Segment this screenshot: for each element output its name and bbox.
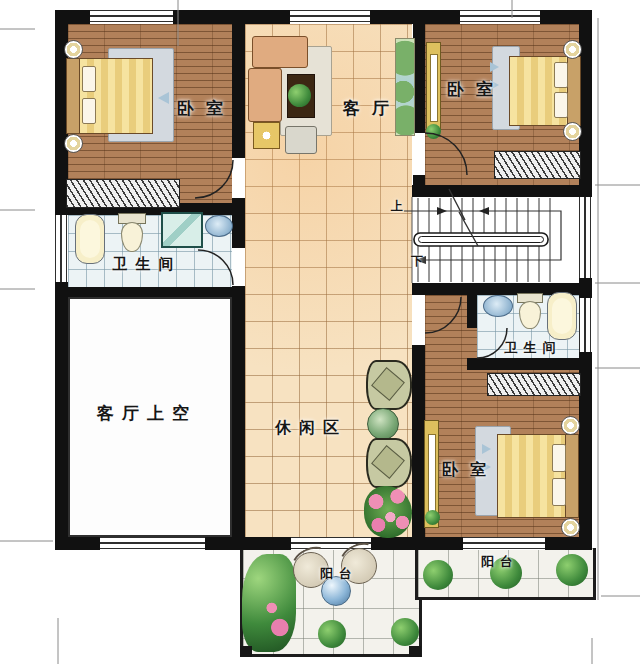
nightstand-lamp-icon [563,40,582,59]
wall-bottom [371,537,463,550]
label-bathroom-right: 卫生间 [499,339,562,357]
label-stairs-up: 上 [391,198,403,215]
label-stairs-down: 下 [411,253,423,270]
wall-inner [55,287,245,297]
wall-right [579,278,592,298]
sink-icon [483,295,513,317]
door-opening [412,295,425,345]
balcony-post [409,646,421,657]
bush-icon [391,618,419,646]
wardrobe-icon [487,373,581,396]
pillow [552,444,566,472]
sofa-icon [248,68,282,122]
label-bathroom-left: 卫生间 [105,255,182,274]
plant-icon [426,124,441,139]
bed-headboard [565,434,579,518]
window-icon [579,197,592,278]
window-icon [579,298,592,352]
floor-plan: 卧室 客厅 卧室 卫生间 客厅上空 休闲区 卫生间 卧室 阳台 阳台 上 下 [0,0,640,664]
sliding-door-icon [463,537,545,550]
plant-icon [288,84,311,107]
round-table-icon [367,408,399,440]
plant-icon [242,554,296,652]
label-balcony-left: 阳台 [314,565,358,583]
wall-inner [467,358,579,370]
wall-left [55,282,68,550]
staircase-area [412,197,579,283]
plant-icon [425,510,440,525]
nightstand-lamp-icon [64,40,83,59]
side-table-icon [253,122,280,149]
label-living-void: 客厅上空 [89,402,197,425]
label-balcony-right: 阳台 [475,553,519,571]
window-icon [290,10,370,24]
pillow [82,66,96,92]
arrow-icon [482,444,496,454]
nightstand-lamp-icon [563,122,582,141]
wall-inner [412,185,592,197]
label-bedroom-bottom-right: 卧室 [430,460,498,481]
arrow-icon [490,62,504,72]
sink-icon [205,215,233,237]
label-bedroom-top-left: 卧室 [165,97,235,120]
window-icon [460,10,540,24]
wall-bottom [205,537,291,550]
wall-inner [467,295,477,328]
label-living-room: 客厅 [331,97,401,120]
nightstand-lamp-icon [561,416,580,435]
window-icon [100,537,205,550]
label-leisure-area: 休闲区 [267,418,347,439]
pillow [82,98,96,124]
bathtub-icon [75,214,105,264]
wall-bottom [545,537,592,550]
pillow [554,92,568,118]
label-bedroom-top-right: 卧室 [435,78,505,101]
wall-top [173,10,290,24]
bathtub-icon [547,292,577,340]
armchair-icon [285,126,317,154]
window-icon [55,215,68,282]
wardrobe-icon [494,151,581,179]
window-icon [90,10,173,24]
bush-icon [318,620,346,648]
wall-inner [232,286,245,537]
wall-top [370,10,460,24]
nightstand-lamp-icon [561,518,580,537]
bush-icon [423,560,453,590]
wall-inner [232,24,245,158]
sofa-icon [252,36,308,68]
wardrobe-icon [66,179,180,208]
indoor-planter-icon [395,38,415,136]
wall-bottom [55,537,100,550]
pillow [554,62,568,88]
balcony-post [240,646,252,657]
nightstand-lamp-icon [64,134,83,153]
shower-icon [161,212,203,248]
pillow [552,478,566,506]
bush-icon [556,554,588,586]
flower-pot-icon [364,486,412,538]
bed-headboard [567,56,581,126]
